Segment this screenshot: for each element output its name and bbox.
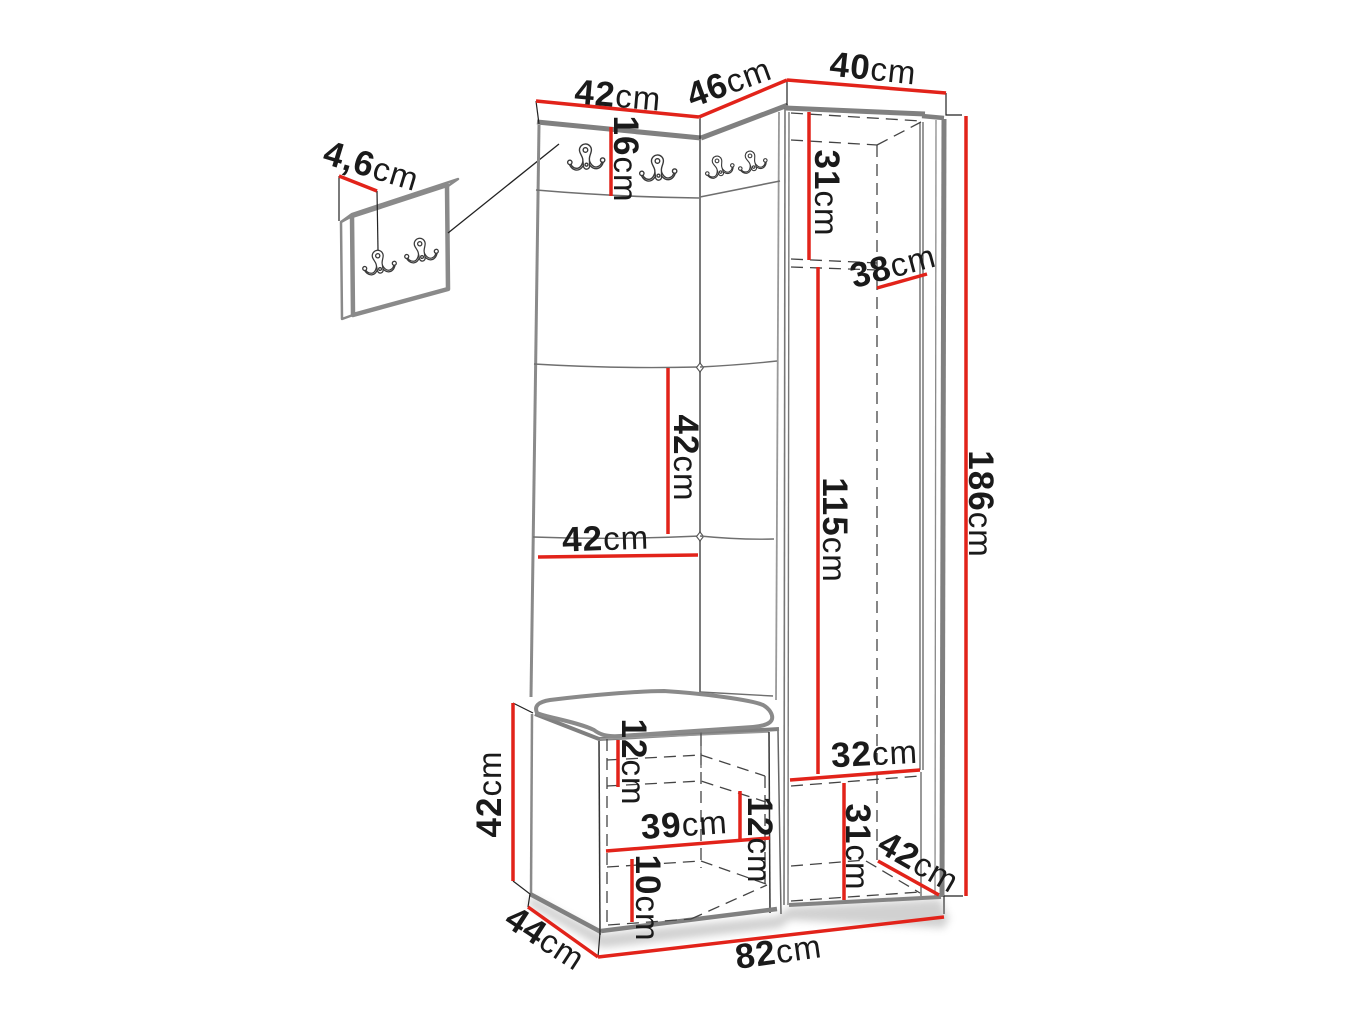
svg-text:186cm: 186cm <box>961 450 1000 557</box>
svg-text:12cm: 12cm <box>614 719 653 806</box>
svg-text:32cm: 32cm <box>830 732 919 775</box>
svg-text:12cm: 12cm <box>740 797 779 884</box>
svg-text:42cm: 42cm <box>561 518 649 560</box>
svg-text:31cm: 31cm <box>807 150 846 237</box>
svg-text:31cm: 31cm <box>838 804 877 891</box>
svg-text:42cm: 42cm <box>573 72 663 118</box>
svg-text:115cm: 115cm <box>815 477 854 582</box>
svg-text:16cm: 16cm <box>606 116 645 203</box>
svg-text:10cm: 10cm <box>628 855 667 942</box>
svg-text:42cm: 42cm <box>666 415 705 502</box>
svg-text:42cm: 42cm <box>470 751 509 838</box>
svg-text:39cm: 39cm <box>639 802 728 847</box>
